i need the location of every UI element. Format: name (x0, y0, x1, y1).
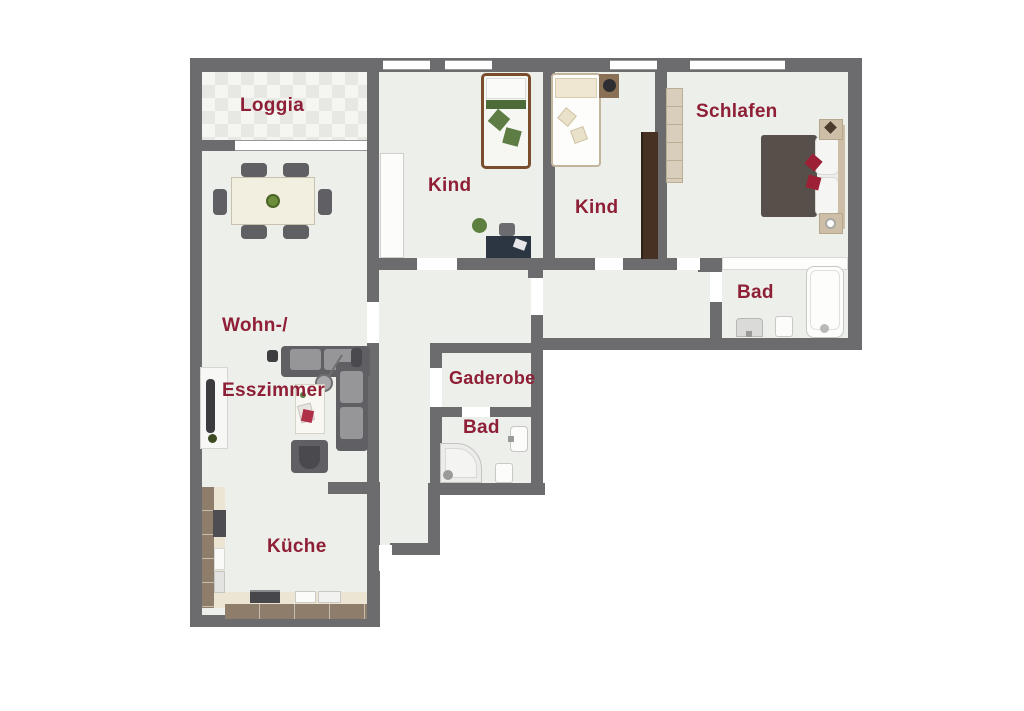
door-opening (710, 272, 722, 302)
kitchen-sink (295, 591, 316, 603)
room-label-kind2: Kind (575, 197, 618, 219)
wall (202, 140, 235, 151)
room-label-wohn-line1: Wohn-/ (222, 315, 325, 337)
wall (390, 543, 440, 555)
bed-blanket-strip (486, 100, 526, 109)
wall (490, 407, 531, 417)
bed-pillow (555, 78, 597, 98)
stove (250, 590, 280, 603)
kitchen-cabinet-left (202, 487, 214, 608)
vestibule-floor (379, 483, 428, 545)
window (445, 60, 492, 70)
sideboard-plant (208, 434, 217, 443)
kitchen-appliance (214, 548, 225, 570)
kitchen-basins (318, 591, 341, 603)
shower-head (443, 470, 453, 480)
room-label-schlafen: Schlafen (696, 101, 778, 123)
room-label-wohn-esszimmer: Wohn-/ Esszimmer (222, 271, 325, 446)
wall (667, 258, 677, 270)
sofa-cushion (340, 407, 363, 439)
table-plant (266, 194, 280, 208)
wall (698, 258, 722, 272)
dining-chair (241, 163, 267, 177)
room-label-gaderobe: Gaderobe (449, 368, 535, 389)
wall (531, 315, 543, 483)
bathtub-inner (810, 270, 840, 330)
sofa-cushion (340, 371, 363, 403)
wardrobe (641, 132, 658, 259)
plant (472, 218, 487, 233)
dining-chair (318, 189, 332, 215)
dining-chair (283, 163, 309, 177)
wall (430, 343, 442, 368)
room-label-wohn-line2: Esszimmer (222, 380, 325, 402)
nightstand-lamp (603, 79, 616, 92)
bathtub-faucet (820, 324, 829, 333)
floor-plan-canvas: { "rooms": { "loggia": { "label": "Loggi… (0, 0, 1024, 711)
dining-chair (213, 189, 227, 215)
door-opening (531, 278, 543, 315)
desk-chair (499, 223, 515, 236)
dining-chair (241, 225, 267, 239)
wall (543, 258, 595, 270)
wall (848, 58, 862, 350)
door-opening (430, 368, 442, 407)
wall (428, 483, 545, 495)
wall (367, 258, 417, 270)
wardrobe (380, 153, 404, 258)
door-opening (417, 258, 457, 270)
floor-plan: Loggia Kind Kind Schlafen Bad Wohn-/ Ess… (0, 0, 1024, 711)
tv (206, 379, 215, 433)
wall (528, 262, 543, 278)
wall (543, 338, 862, 350)
door-opening (379, 545, 392, 571)
sink-faucet (746, 331, 752, 337)
oven (213, 510, 226, 537)
armchair-seat (299, 446, 320, 469)
door-opening (595, 258, 623, 270)
window (690, 60, 785, 70)
decor-item (351, 348, 362, 367)
wardrobe (666, 88, 683, 183)
room-label-loggia: Loggia (240, 95, 304, 117)
room-label-kind1: Kind (428, 175, 471, 197)
wall (442, 407, 462, 417)
toilet (775, 316, 793, 337)
wall (190, 58, 202, 627)
wall (428, 495, 440, 543)
loggia-slider-window (235, 140, 367, 151)
room-label-kueche: Küche (267, 536, 327, 558)
kitchen-sink-left (214, 571, 225, 593)
door-opening (677, 258, 700, 270)
door-opening (462, 407, 490, 417)
toilet (495, 463, 513, 483)
wall (433, 343, 531, 353)
window (610, 60, 657, 70)
sink-faucet (508, 436, 514, 442)
window (383, 60, 430, 70)
bed-pillow (815, 136, 839, 175)
kitchen-cabinet-bottom (225, 604, 367, 619)
dining-chair (283, 225, 309, 239)
room-label-bad-small: Bad (463, 417, 500, 439)
bed-pillow (486, 78, 526, 99)
nightstand-lamp (825, 218, 836, 229)
room-label-bad-top: Bad (737, 282, 774, 304)
wall (710, 302, 722, 340)
